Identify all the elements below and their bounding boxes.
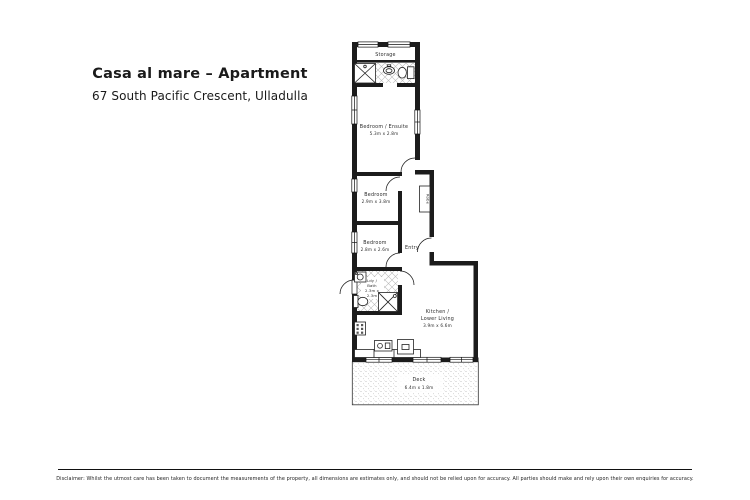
floorplan-page: Casa al mare – Apartment 67 South Pacifi… bbox=[0, 0, 750, 500]
kitchen-fixtures bbox=[355, 322, 421, 358]
disclaimer-text: Disclaimer: Whilst the utmost care has b… bbox=[0, 476, 750, 482]
window bbox=[352, 179, 357, 192]
laundry-bath-dims-2: 2.3m bbox=[367, 293, 377, 298]
deck-label: Deck bbox=[412, 377, 425, 383]
stove-icon bbox=[375, 341, 393, 352]
bedroom-mid-dims: 2.9m x 3.8m bbox=[362, 199, 391, 204]
appliance-icon bbox=[355, 322, 366, 335]
bedroom-ensuite-dims: 5.3m x 2.8m bbox=[370, 131, 399, 136]
door-arc bbox=[386, 177, 400, 191]
window bbox=[388, 42, 410, 47]
window bbox=[450, 357, 473, 362]
washing-machine-icon bbox=[355, 272, 367, 282]
bedroom-lower-label: Bedroom bbox=[363, 240, 387, 246]
door-arc bbox=[386, 253, 400, 267]
door-arc bbox=[401, 158, 415, 172]
entry-label: Entry bbox=[405, 245, 419, 251]
window bbox=[352, 96, 357, 124]
shower-icon bbox=[355, 64, 376, 84]
floor-plan-svg: Deck 6.4m x 1.8m bbox=[0, 0, 750, 500]
window bbox=[358, 42, 378, 47]
deck-dims: 6.4m x 1.8m bbox=[405, 385, 434, 390]
bedroom-ensuite-label: Bedroom / Ensuite bbox=[360, 124, 408, 130]
kitchen-sink-icon bbox=[398, 340, 414, 355]
kitchen-living-label-1: Kitchen / bbox=[426, 309, 450, 315]
door-arc bbox=[400, 271, 414, 285]
kitchen-living-dims: 3.9m x 6.6m bbox=[423, 323, 452, 328]
window bbox=[413, 357, 441, 362]
storage-label: Storage bbox=[375, 52, 396, 58]
footer-divider bbox=[58, 469, 692, 470]
shower-icon bbox=[379, 293, 398, 312]
door-arc bbox=[418, 238, 432, 252]
deck-area: Deck 6.4m x 1.8m bbox=[352, 362, 478, 405]
room-labels: Storage Bedroom / Ensuite 5.3m x 2.8m Be… bbox=[360, 52, 454, 328]
bedroom-lower-dims: 2.8m x 2.6m bbox=[361, 247, 390, 252]
window bbox=[352, 232, 357, 253]
kitchen-living-label-2: Lower Living bbox=[421, 316, 454, 322]
robe-closet: Robe bbox=[420, 186, 431, 212]
window bbox=[415, 110, 420, 134]
robe-label: Robe bbox=[425, 194, 430, 205]
window bbox=[366, 357, 392, 362]
bedroom-mid-label: Bedroom bbox=[364, 192, 388, 198]
